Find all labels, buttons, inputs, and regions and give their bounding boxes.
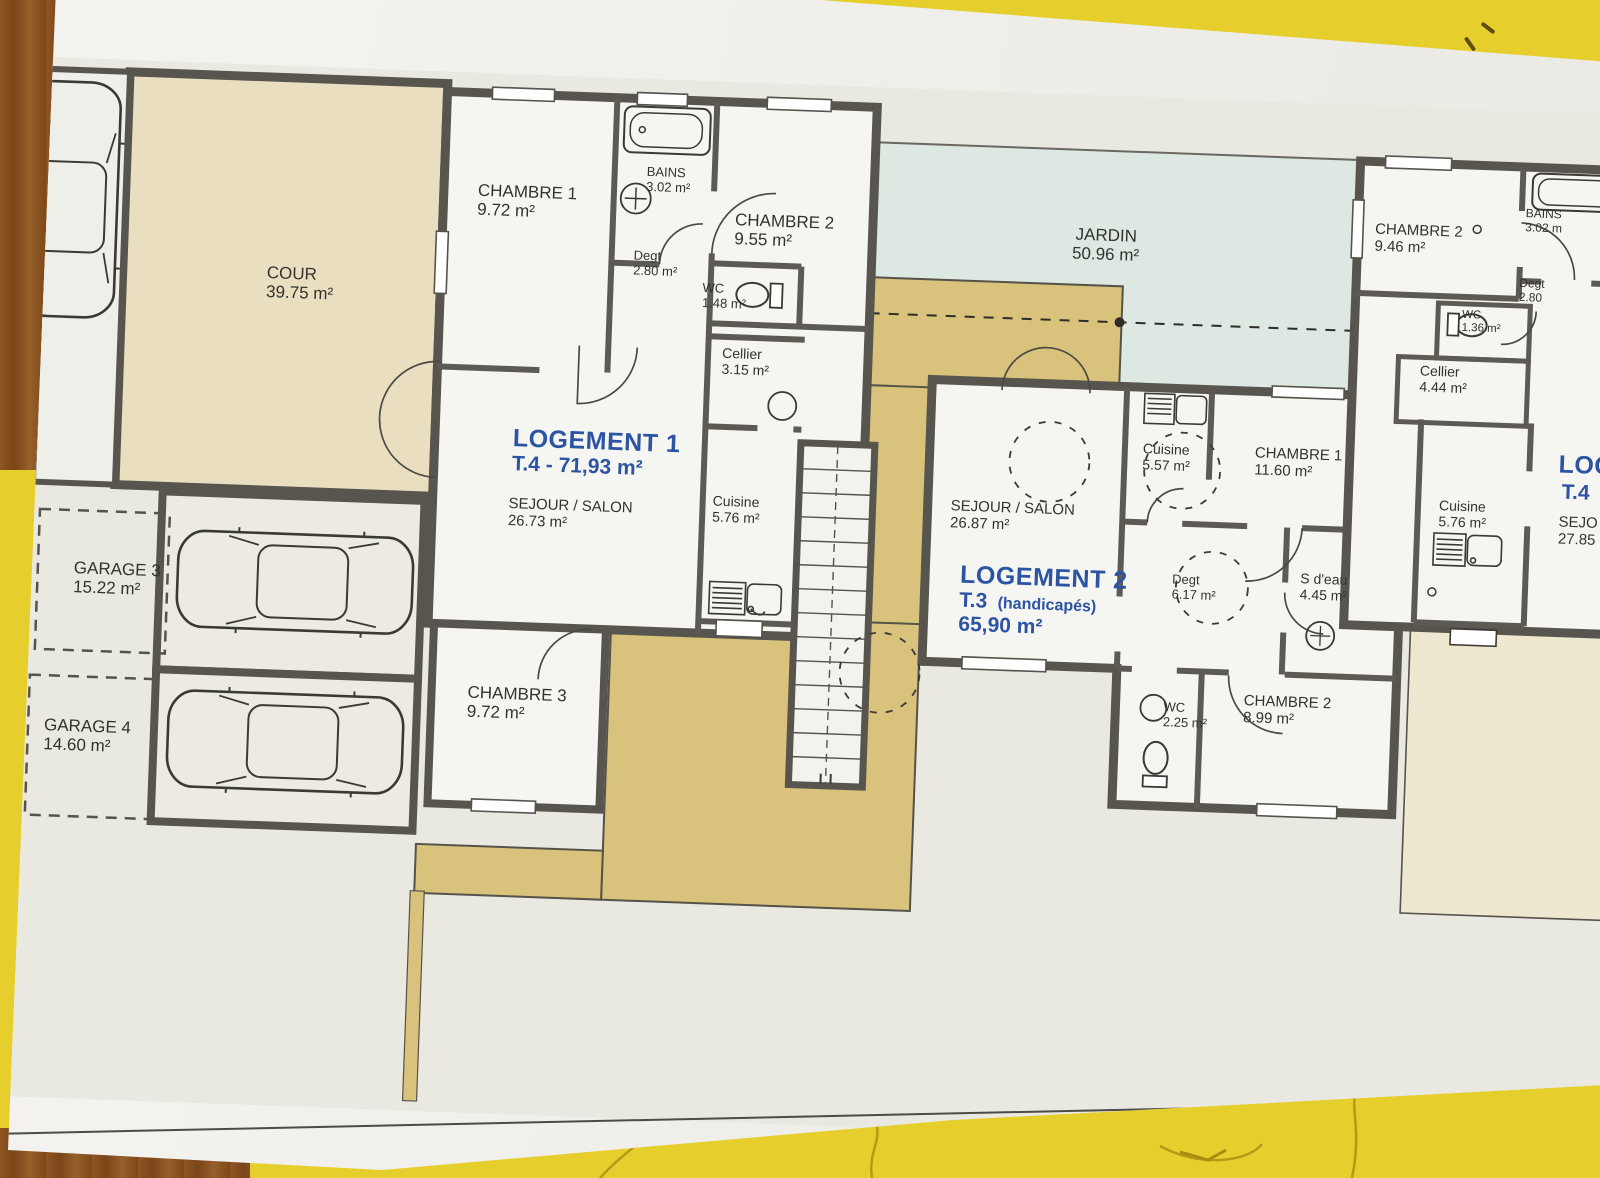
l2-sejour-label: SEJOUR / SALON26.87 m² [950,498,1075,536]
l1-type: T.4 - 71,93 m² [512,452,644,480]
l3-title: LOG [1558,450,1600,480]
right-garden-area [1400,623,1600,921]
l1-cuisine-label: Cuisine5.76 m² [712,494,761,527]
l2-chambre1-label: CHAMBRE 111.60 m² [1254,445,1343,482]
l1-bains-label: BAINS3.02 m² [646,165,691,196]
l3-bains-label: BAINS3.02 m [1525,207,1563,235]
jardin-label: JARDIN50.96 m² [1072,225,1140,266]
l1-cellier-label: Cellier3.15 m² [721,346,770,379]
paper-sheet: COUR39.75 m² GARAGE 315.22 m² GARAGE 414… [0,0,1600,1178]
l2-area: 65,90 m² [958,613,1043,640]
l3-cuisine-label: Cuisine5.76 m² [1438,498,1487,531]
l1-chambre1-label: CHAMBRE 19.72 m² [477,181,578,223]
l1-sejour-label: SEJOUR / SALON26.73 m² [508,496,633,534]
l3-chambre2-label: CHAMBRE 29.46 m² [1374,222,1463,259]
l3-sejour-label: SEJO27.85 [1558,515,1598,550]
l2-sdeau-label: S d'eau4.45 m² [1299,571,1348,604]
l3-degt-label: Degt2.80 [1518,277,1544,305]
l2-degt-label: Degt6.17 m² [1171,572,1216,603]
l1-degt-label: Degt2.80 m² [633,248,678,279]
l2-wc-label: WC2.25 m² [1163,700,1208,731]
floor-plan: COUR39.75 m² GARAGE 315.22 m² GARAGE 414… [38,18,1600,1178]
garage4-label: GARAGE 414.60 m² [43,715,131,757]
l1-wc-label: WC1.48 m² [702,281,747,312]
l3-type: T.4 [1561,481,1590,506]
garage3-label: GARAGE 315.22 m² [73,558,161,600]
photo-scene: COUR39.75 m² GARAGE 315.22 m² GARAGE 414… [0,0,1600,1178]
l3-cellier-label: Cellier4.44 m² [1419,363,1468,396]
l3-wc-label: WC1.36 m² [1461,309,1501,336]
plan-drawing [0,16,1600,1178]
cour-label: COUR39.75 m² [266,263,334,304]
l2-cuisine-label: Cuisine5.57 m² [1142,441,1191,474]
l2-chambre2-label: CHAMBRE 28.99 m² [1243,693,1332,730]
l1-chambre2-label: CHAMBRE 29.55 m² [734,210,835,252]
staircase [788,443,874,787]
l1-chambre3-label: CHAMBRE 39.72 m² [466,683,567,725]
